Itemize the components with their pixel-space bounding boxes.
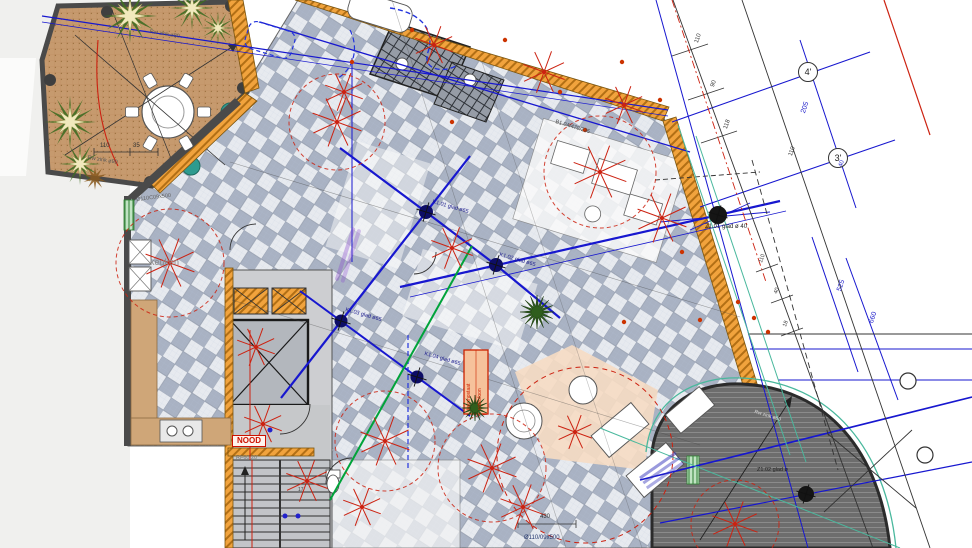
- device-dot: [558, 90, 562, 94]
- floor-plan: Rw zink ø80 Rw zink ø90 Rw zink ø80 keuk…: [0, 0, 972, 548]
- bottom-ref-label: Ø110/09x500: [524, 535, 560, 541]
- grid-bubble-4: 4': [798, 62, 818, 82]
- device-dot: [450, 120, 454, 124]
- round-table: [142, 86, 194, 138]
- device-dot: [766, 330, 770, 334]
- device-dot: [620, 60, 624, 64]
- device-dot: [410, 28, 414, 32]
- dim-label: 110: [100, 143, 110, 149]
- device-label: videofoon: [478, 388, 483, 410]
- chair: [198, 107, 211, 117]
- dim-label: 35: [133, 143, 140, 149]
- device-dot: [658, 98, 662, 102]
- device-dot: [736, 300, 740, 304]
- plant-icon: [520, 295, 554, 329]
- device-dot: [283, 514, 288, 519]
- column-label-z101: Z1.01 glad ø 40: [705, 224, 747, 230]
- device-dot: [268, 428, 273, 433]
- room-label-kitchen: keuken: [150, 258, 179, 267]
- device-dot: [752, 316, 756, 320]
- device-dot: [680, 250, 684, 254]
- device-dot: [296, 514, 301, 519]
- chair: [126, 107, 139, 117]
- plan-drawing: [0, 0, 972, 548]
- device-dot: [503, 38, 507, 42]
- device-dot: [350, 60, 354, 64]
- device-label: thermostaat: [467, 384, 472, 410]
- emergency-exit-label: NOOD: [232, 435, 266, 447]
- fire-rating-label: RF60 20': [236, 456, 258, 462]
- device-dot: [622, 320, 626, 324]
- dim-label: 430: [540, 514, 550, 520]
- stair-number: 17: [298, 488, 304, 493]
- column-label-z102: Z1.02 glad ø: [757, 468, 788, 474]
- device-dot: [698, 318, 702, 322]
